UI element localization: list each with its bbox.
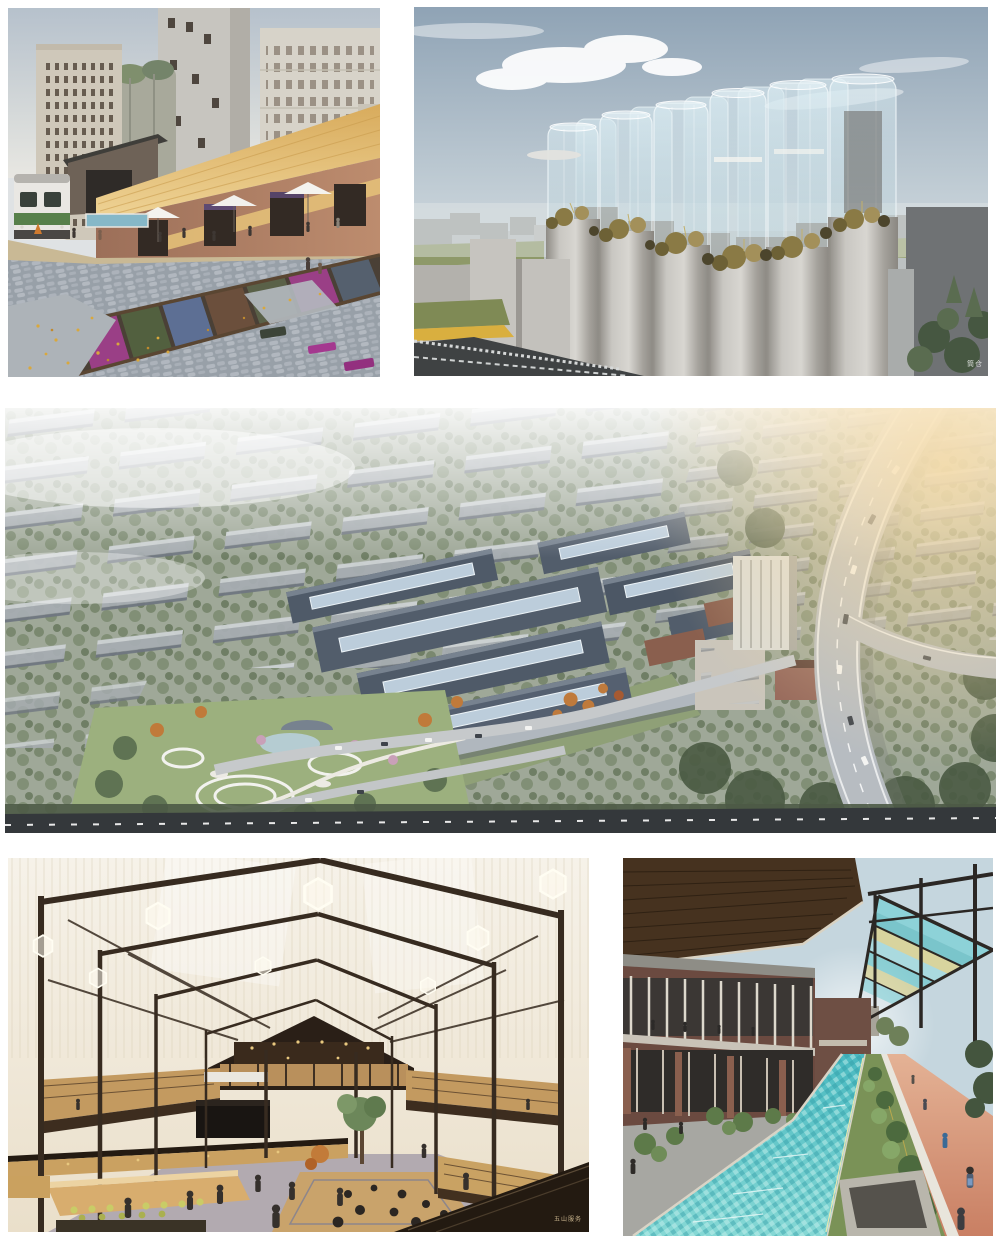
train-car: [14, 174, 70, 240]
bottom-road: [5, 804, 996, 833]
silo-towers-illustration: [414, 7, 988, 376]
aerial-masterplan-illustration: [5, 408, 996, 833]
industrial-plaza-illustration: [8, 8, 380, 377]
canal-promenade-illustration: [623, 858, 993, 1236]
render-silo-glass-towers: 筒仓: [414, 7, 988, 376]
railway-foreground: [8, 255, 380, 377]
render-canal-promenade: [623, 858, 993, 1236]
render-market-hall-interior: 五山服务: [8, 858, 589, 1232]
render-industrial-plaza: [8, 8, 380, 377]
silo-cluster: [527, 74, 898, 376]
render-aerial-masterplan: [5, 408, 996, 833]
render-collage: 筒仓: [0, 0, 1000, 1240]
market-hall-illustration: [8, 858, 589, 1232]
